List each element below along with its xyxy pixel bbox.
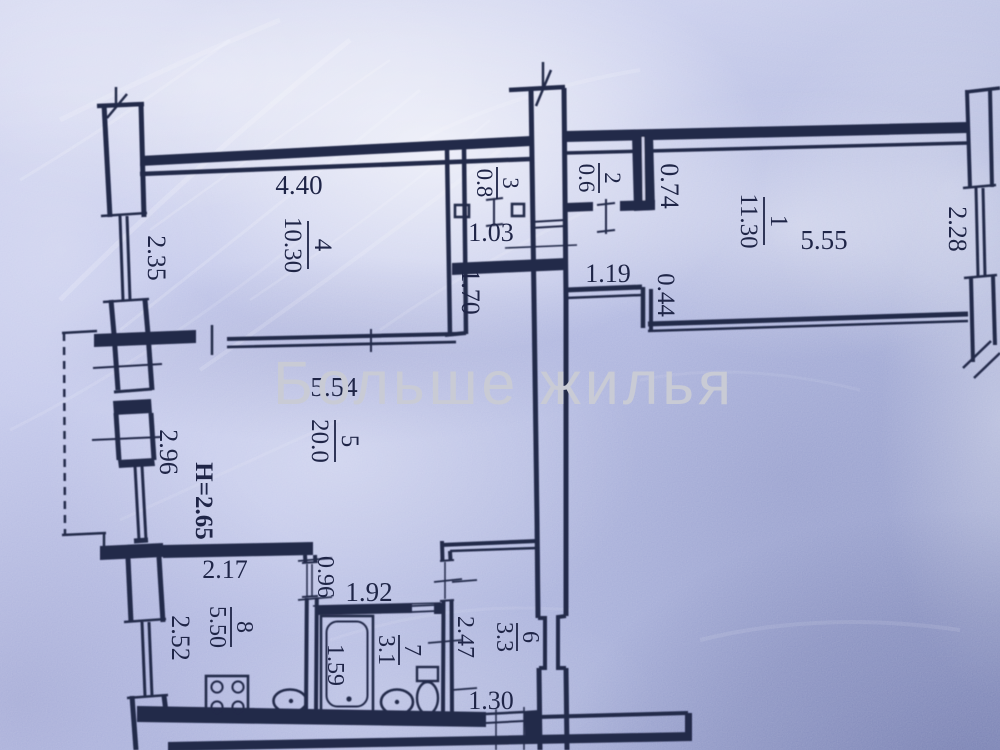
svg-text:3: 3: [498, 177, 523, 189]
svg-text:4.40: 4.40: [275, 170, 322, 200]
svg-text:1.70: 1.70: [456, 269, 485, 315]
svg-text:1.19: 1.19: [585, 259, 631, 288]
svg-text:8: 8: [231, 621, 257, 633]
svg-text:1.92: 1.92: [345, 577, 392, 607]
svg-text:11.30: 11.30: [735, 193, 762, 248]
svg-text:1.03: 1.03: [468, 218, 514, 247]
svg-text:1.59: 1.59: [322, 644, 348, 686]
svg-text:6: 6: [517, 631, 543, 643]
svg-text:5.50: 5.50: [204, 606, 230, 648]
svg-text:0.74: 0.74: [655, 163, 684, 209]
svg-text:2.35: 2.35: [142, 235, 171, 281]
svg-text:10.30: 10.30: [279, 217, 306, 273]
svg-text:2: 2: [600, 172, 625, 184]
svg-text:2.96: 2.96: [154, 429, 183, 475]
svg-text:0.8: 0.8: [472, 169, 497, 198]
svg-text:1: 1: [765, 215, 792, 228]
svg-text:2.17: 2.17: [202, 555, 248, 584]
svg-text:Больше жилья: Больше жилья: [273, 349, 735, 417]
svg-text:0.96: 0.96: [312, 556, 338, 598]
svg-text:3.1: 3.1: [373, 635, 399, 665]
svg-text:3.3: 3.3: [491, 622, 517, 652]
svg-text:7: 7: [399, 644, 425, 656]
svg-text:5: 5: [336, 435, 363, 448]
svg-text:5.55: 5.55: [800, 225, 847, 255]
svg-text:4: 4: [309, 239, 336, 252]
svg-text:2.28: 2.28: [943, 206, 972, 252]
svg-text:2.52: 2.52: [166, 615, 195, 661]
svg-text:0.6: 0.6: [574, 164, 599, 193]
svg-text:0.44: 0.44: [652, 273, 679, 317]
svg-text:20.0: 20.0: [306, 419, 333, 463]
svg-text:2.47: 2.47: [452, 616, 478, 658]
svg-text:H=2.65: H=2.65: [190, 462, 217, 539]
svg-text:1.30: 1.30: [468, 686, 514, 715]
